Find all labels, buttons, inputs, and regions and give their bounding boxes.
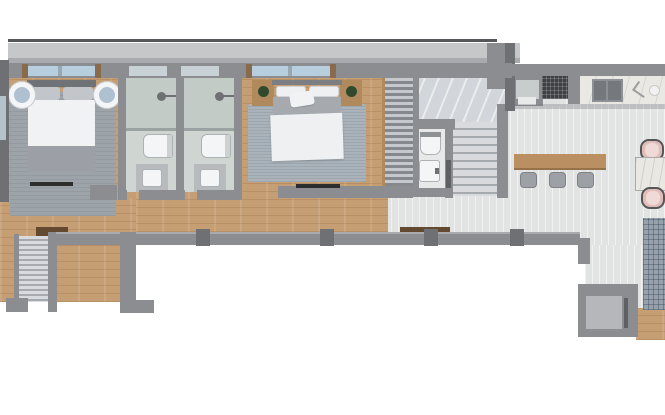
living-right-wall-stub	[578, 238, 590, 264]
nightstand-decor-right	[99, 87, 115, 103]
bed2-duvet	[270, 113, 344, 161]
chair-seat	[645, 143, 659, 157]
bar-stool-2	[549, 172, 566, 188]
breakfast-bar	[514, 154, 606, 170]
plant-right-icon	[346, 86, 357, 97]
entrance-stairs-left-rail	[14, 234, 19, 304]
bed1-sheet	[28, 100, 95, 146]
kitchen-top-wall	[510, 64, 665, 76]
bathroom-wall-right	[234, 76, 242, 200]
left-wall-window	[0, 96, 6, 140]
bedroom2-window-mullion	[288, 66, 292, 76]
shower-arm-1	[163, 95, 176, 97]
bathroom-bottom-wall-mid	[139, 190, 185, 200]
bedroom2-tv	[296, 184, 340, 188]
wc-toilet-tank	[420, 132, 441, 137]
bedroom1-tv	[30, 182, 73, 186]
bathroom2-shower-zone	[184, 76, 234, 130]
basin-bathroom1	[142, 169, 162, 187]
bottom-left-wall-stub	[6, 298, 28, 312]
wardrobe-side-wall	[413, 70, 419, 196]
plant-left-icon	[258, 86, 269, 97]
staircase-rail	[497, 104, 508, 198]
slider-mullion-3	[424, 229, 438, 246]
slider-mullion-1	[196, 229, 210, 246]
bathroom1-bottom-wall-stub	[118, 190, 127, 200]
roof-edge-line	[8, 39, 497, 42]
bar-stool-3	[577, 172, 594, 188]
chair-seat	[646, 191, 660, 205]
bed1-headboard	[27, 80, 96, 87]
entrance-stairs	[18, 236, 48, 302]
bathroom-wall-middle	[176, 76, 184, 200]
kitchen-counter-shadow	[512, 104, 665, 109]
floor-plan	[0, 0, 665, 415]
kitchen-hob-grill	[542, 75, 569, 99]
bathroom1-window	[129, 66, 167, 76]
slider-mullion-2	[320, 229, 334, 246]
bedroom1-window-trim-right	[95, 64, 101, 78]
slider-mullion-4	[510, 229, 524, 246]
wc-faucet-icon	[435, 168, 439, 174]
bed1-pillow-right	[63, 87, 93, 100]
bedroom2-window-trim-right	[330, 64, 336, 78]
toilet-tank-2	[225, 135, 230, 157]
wc-bottom-wall	[413, 188, 453, 197]
dining-table	[636, 158, 665, 190]
entry-vestibule-door	[624, 298, 628, 328]
basin-bathroom2	[200, 169, 220, 187]
bathroom2-glass-divider	[184, 128, 234, 131]
bedroom1-window-mullion	[58, 66, 62, 76]
kitchen-wall-pier	[568, 74, 580, 104]
wardrobe-shelving	[382, 72, 413, 186]
dining-chair-bottom	[641, 187, 665, 209]
living-rug	[643, 218, 665, 310]
toilet-tank-1	[167, 135, 172, 157]
nightstand-decor-left	[14, 87, 30, 103]
bed2-headboard	[272, 80, 342, 85]
bathroom1-shower-zone	[126, 76, 176, 130]
top-parapet	[8, 43, 520, 63]
main-staircase-treads	[450, 122, 497, 196]
kitchen-counter-decor	[650, 86, 659, 95]
bed1-blanket	[28, 146, 95, 172]
shower-arm-2	[221, 95, 234, 97]
bottom-right-wood-floor	[636, 308, 665, 340]
bathroom-bottom-wall-right	[197, 190, 242, 200]
kitchen-sink-divider	[606, 81, 608, 100]
entry-vestibule-interior	[586, 296, 622, 329]
bathroom1-glass-divider	[126, 128, 176, 131]
bathroom-wall-left	[118, 76, 126, 200]
bathroom2-window	[181, 66, 219, 76]
bedroom1-door-pier	[90, 185, 117, 200]
hall-wall-foot	[120, 300, 154, 313]
bar-stool-1	[520, 172, 537, 188]
